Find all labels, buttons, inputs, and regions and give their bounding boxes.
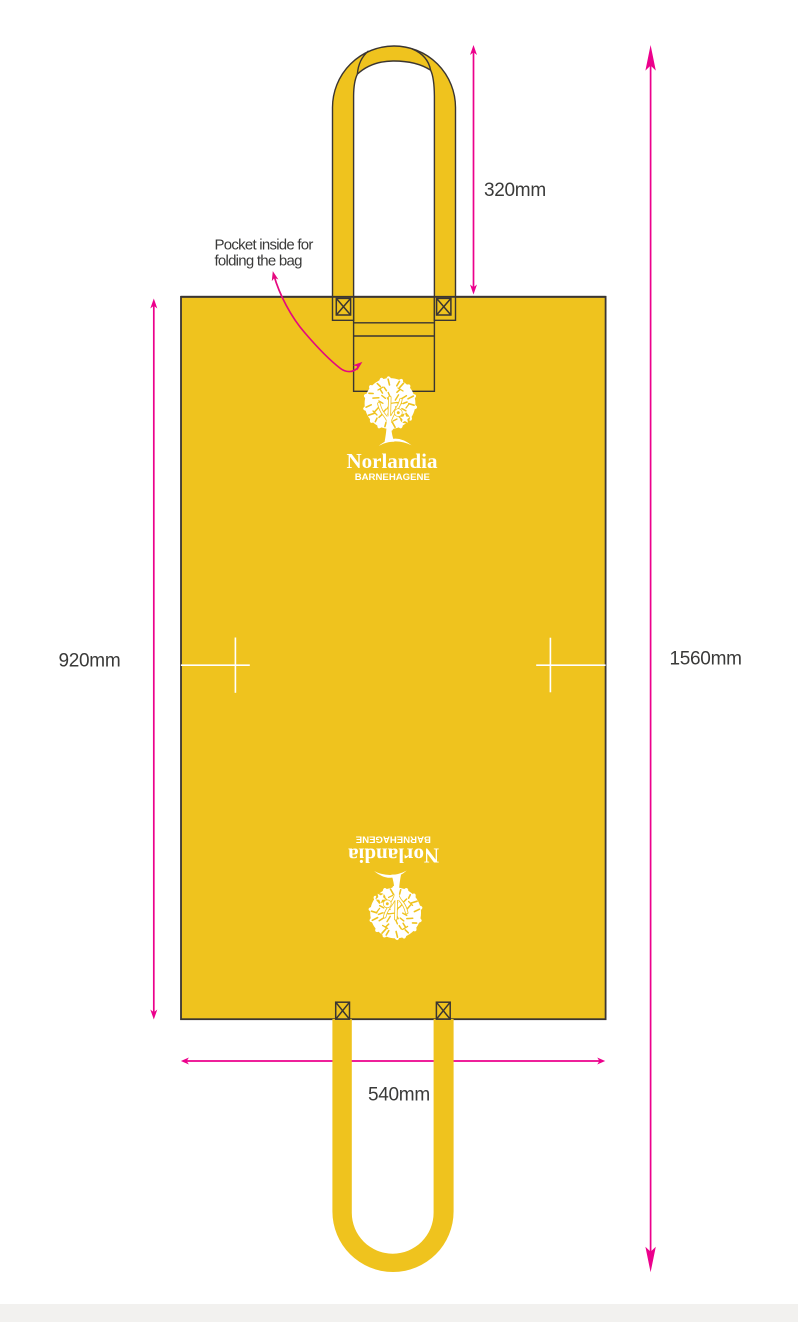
svg-text:Norlandia: Norlandia [346, 449, 438, 473]
svg-text:320mm: 320mm [484, 180, 546, 201]
svg-text:Pocket inside for: Pocket inside for [215, 237, 314, 254]
svg-text:920mm: 920mm [59, 651, 121, 672]
svg-text:BARNEHAGENE: BARNEHAGENE [355, 834, 431, 845]
svg-text:Norlandia: Norlandia [348, 843, 440, 867]
svg-text:BARNEHAGENE: BARNEHAGENE [355, 472, 431, 483]
svg-text:540mm: 540mm [368, 1085, 430, 1106]
svg-text:folding the bag: folding the bag [215, 253, 303, 270]
svg-text:1560mm: 1560mm [670, 648, 742, 669]
